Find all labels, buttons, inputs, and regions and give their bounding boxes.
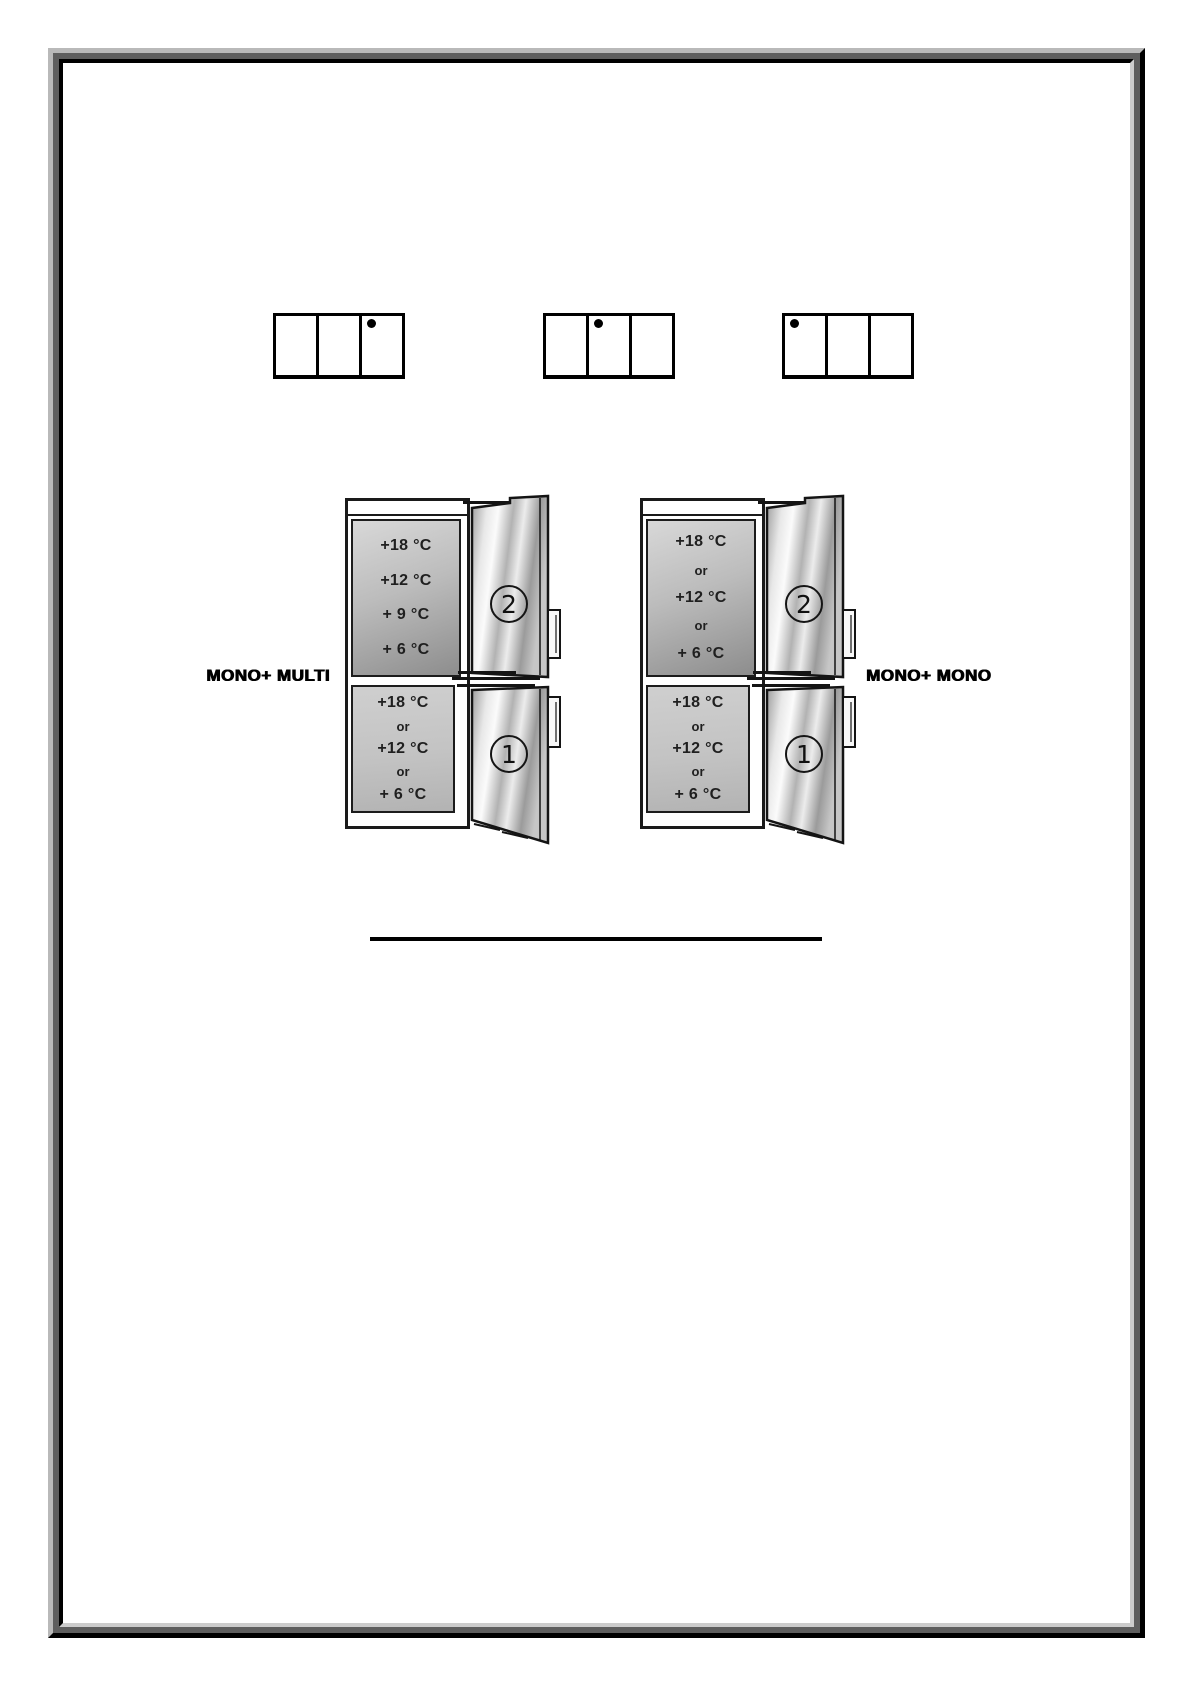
door-number-badge: 2: [785, 585, 823, 623]
upper-compartment: +18 °C or +12 °C or + 6 °C: [646, 519, 756, 677]
temperature-label: +12 °C: [675, 589, 726, 607]
selector-cell: [276, 316, 316, 375]
selector-cell: [546, 316, 586, 375]
door-gap-line: [752, 684, 830, 687]
cabinet-top-line: [348, 514, 467, 516]
temperature-label: +18 °C: [672, 694, 723, 712]
selector-cell: [586, 316, 629, 375]
door-gap-line: [753, 671, 811, 674]
selector-cell: [359, 316, 402, 375]
selector-dot: [367, 319, 376, 328]
selector-dot: [594, 319, 603, 328]
fridge-diagram-mono-multi: +18 °C +12 °C + 9 °C + 6 °C +18 °C or +1…: [345, 494, 575, 854]
door-number-badge: 1: [785, 735, 823, 773]
separator-line: [370, 937, 822, 941]
temperature-label: + 6 °C: [380, 786, 427, 804]
selector-cell: [785, 316, 825, 375]
door-number-badge: 2: [490, 585, 528, 623]
or-label: or: [397, 765, 410, 778]
door-gap-line: [747, 677, 835, 680]
temperature-label: +12 °C: [377, 740, 428, 758]
open-doors-drawing: [470, 494, 565, 854]
door-top-edge-line: [463, 501, 511, 504]
mode-label-mono-mono: MONO+ MONO: [866, 666, 1066, 686]
selector-cell: [825, 316, 868, 375]
upper-compartment: +18 °C +12 °C + 9 °C + 6 °C: [351, 519, 461, 677]
lower-compartment: +18 °C or +12 °C or + 6 °C: [646, 685, 750, 813]
door-gap-line: [458, 671, 516, 674]
door-gap-line: [457, 684, 535, 687]
door-number-badge: 1: [490, 735, 528, 773]
page-frame-mid: [53, 53, 1140, 1633]
selector-cell: [629, 316, 672, 375]
open-doors-drawing: [765, 494, 860, 854]
fridge-diagram-mono-mono: +18 °C or +12 °C or + 6 °C +18 °C or +12…: [640, 494, 870, 854]
door-top-edge-line: [758, 501, 806, 504]
selector-cell: [868, 316, 911, 375]
or-label: or: [397, 720, 410, 733]
scanned-manual-page: +18 °C +12 °C + 9 °C + 6 °C +18 °C or +1…: [0, 0, 1190, 1684]
door-gap-line: [452, 677, 540, 680]
selector-box-3: [782, 313, 914, 379]
temperature-label: +18 °C: [380, 537, 431, 555]
temperature-label: + 6 °C: [675, 786, 722, 804]
temperature-label: + 6 °C: [678, 645, 725, 663]
temperature-label: + 9 °C: [383, 606, 430, 624]
temperature-label: +12 °C: [380, 572, 431, 590]
page-frame-outer: [48, 48, 1145, 1638]
selector-box-1: [273, 313, 405, 379]
or-label: or: [695, 619, 708, 632]
page-frame-inner: [59, 59, 1134, 1627]
selector-box-2: [543, 313, 675, 379]
temperature-label: +18 °C: [675, 533, 726, 551]
temperature-label: + 6 °C: [383, 641, 430, 659]
cabinet-top-line: [643, 514, 762, 516]
or-label: or: [695, 564, 708, 577]
or-label: or: [692, 765, 705, 778]
temperature-label: +12 °C: [672, 740, 723, 758]
fridge-cabinet: +18 °C or +12 °C or + 6 °C +18 °C or +12…: [640, 498, 765, 829]
or-label: or: [692, 720, 705, 733]
temperature-label: +18 °C: [377, 694, 428, 712]
selector-cell: [316, 316, 359, 375]
mode-label-mono-multi: MONO+ MULTI: [150, 666, 330, 686]
lower-compartment: +18 °C or +12 °C or + 6 °C: [351, 685, 455, 813]
fridge-cabinet: +18 °C +12 °C + 9 °C + 6 °C +18 °C or +1…: [345, 498, 470, 829]
selector-dot: [790, 319, 799, 328]
